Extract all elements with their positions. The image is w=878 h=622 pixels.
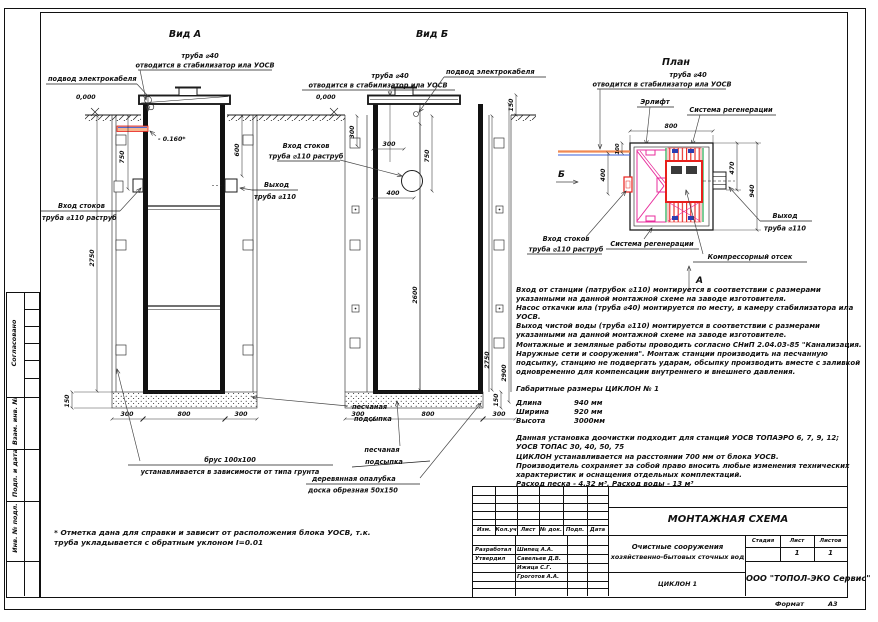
note-paragraph: Насос откачки ила (труба ⌀40) монтируетс… (516, 304, 862, 322)
dim-800-plan: 800 (665, 123, 679, 130)
inlet-label-a: Вход стоков (58, 202, 105, 210)
brus-label: устанавливается в зависимости от типа гр… (141, 468, 320, 476)
plan-title: План (662, 57, 690, 68)
tb-col-podp: Подп. (563, 527, 587, 533)
tb-col-data: Дата (587, 527, 608, 533)
tb-col-izm: Изм. (473, 527, 495, 533)
tb-col-ndok: № док. (539, 527, 563, 533)
tb-sheet-label: Лист (780, 538, 814, 544)
dim-150-top: 150 (508, 98, 515, 112)
compressor-label: Компрессорный отсек (708, 253, 793, 261)
size-label: Ширина (516, 408, 574, 417)
dim-300: 300 (352, 411, 366, 418)
tb-role: Разработал (475, 547, 511, 553)
notes-block: Вход от станции (патрубок ⌀110) монтируе… (516, 286, 862, 489)
inlet-label-a: труба ⌀110 раструб (42, 214, 117, 222)
pipe40-label-b: отводится в стабилизатор ила УОСВ (309, 82, 448, 90)
margin-label-inv-repl: Взам. инв. № (11, 395, 19, 447)
dim-400-b: 400 (387, 190, 401, 197)
size-label: Длина (516, 399, 574, 408)
footnote: * Отметка дана для справки и зависит от … (54, 528, 392, 548)
inlet-label-plan: труба ⌀110 раструб (529, 246, 604, 254)
dim-750: 750 (119, 150, 126, 164)
pipe40-label: труба ⌀40 (181, 52, 219, 60)
airlift-label: Эрлифт (640, 98, 671, 106)
dim-750-b: 750 (424, 149, 431, 163)
tb-sheet-no: 1 (780, 549, 814, 557)
dim-800: 800 (178, 411, 192, 418)
sand-label-b: песчаная (364, 446, 400, 454)
post-brackets (116, 135, 253, 355)
regen-label-bottom: Система регенерации (610, 240, 694, 248)
tb-stage-label: Стадия (746, 538, 780, 544)
formwork-label: деревянная опалубка (311, 475, 396, 483)
dim-600: 600 (234, 143, 241, 157)
tb-name: Ижица С.Г. (517, 565, 552, 571)
view-b-title: Вид Б (416, 29, 448, 40)
format-label: Формат (775, 600, 804, 608)
dim-300: 300 (121, 411, 135, 418)
margin-label-inv-orig: Инв. № подл. (11, 498, 19, 558)
tb-sheets-label: Листов (814, 538, 847, 544)
inlet-label-plan: Вход стоков (543, 235, 590, 243)
tb-company: ООО "ТОПОЛ-ЭКО Сервис" (746, 573, 847, 583)
view-a-title: Вид А (169, 29, 201, 40)
formwork-label: доска обрезная 50х150 (307, 487, 398, 495)
inlet-label-b: труба ⌀110 раструб (269, 153, 344, 161)
tb-name: Гроготов А.А. (517, 574, 559, 580)
pipe40-label-b: труба ⌀40 (371, 72, 409, 80)
outlet-label-plan: Выход (772, 212, 797, 220)
tb-role: Утвердил (475, 556, 505, 562)
ground-line (85, 115, 536, 121)
dim-2900: 2900 (501, 364, 508, 382)
tb-object-line2: хозяйственно-бытовых сточных вод (609, 553, 746, 561)
view-a: Вид А (40, 29, 392, 476)
tb-doc-code: ЦИКЛОН 1 (609, 580, 746, 588)
dim-470: 470 (729, 161, 736, 175)
outlet-label: Выход (264, 181, 289, 189)
dim-2750-a: 2750 (89, 249, 96, 267)
tb-col-koluch: Кол.уч (495, 527, 517, 533)
size-value: 3000мм (574, 417, 605, 425)
inlet-label-b: Вход стоков (283, 142, 330, 150)
outlet-label: труба ⌀110 (254, 193, 296, 201)
margin-label-sign-date: Подп. и дата (11, 447, 19, 499)
tb-name: Савельев Д.В. (517, 556, 561, 562)
size-label: Высота (516, 417, 574, 426)
plan-outlet-stub (713, 172, 726, 189)
tb-col-list: Лист (517, 527, 539, 533)
sand-layer-a (112, 392, 257, 408)
dim-150-a: 150 (64, 394, 71, 408)
dim-2750-b: 2750 (484, 351, 491, 369)
tb-sheets-total: 1 (814, 549, 847, 557)
dim-150-sand: 150 (493, 393, 500, 407)
pipe40-label: отводится в стабилизатор ила УОСВ (136, 62, 275, 70)
dim-800: 800 (422, 411, 436, 418)
plan-inlet-stub (624, 177, 632, 192)
size-value: 920 мм (574, 408, 603, 416)
note-paragraph: Данная установка доочистки подходит для … (516, 434, 862, 452)
dim-100: 100 (615, 143, 621, 155)
outlet-stub-a (225, 179, 237, 192)
inlet-stub-a (133, 179, 143, 192)
dim-300-depth: 300 (349, 125, 356, 139)
dim-300: 300 (493, 411, 507, 418)
cable-label-a: подвод электрокабеля (48, 75, 137, 83)
dim-400-plan: 400 (600, 168, 607, 182)
minus-mark: - 0.160* (158, 136, 186, 143)
plan-view: План труба ⌀40 отводится в стабилизатор … (527, 57, 812, 292)
cable-label-b: подвод электрокабеля (446, 68, 535, 76)
size-row: Ширина920 мм (516, 408, 862, 417)
outlet-label-plan: труба ⌀110 (764, 225, 806, 233)
format-value: А3 (828, 600, 838, 608)
tb-scheme-title: МОНТАЖНАЯ СХЕМА (609, 514, 847, 525)
dim-2600: 2600 (412, 286, 419, 304)
dims-heading: Габаритные размеры ЦИКЛОН № 1 (516, 385, 862, 394)
margin-label-approved: Согласовано (10, 291, 18, 395)
regen-label-top: Система регенерации (689, 106, 773, 114)
pipe40-label-plan: отводится в стабилизатор ила УОСВ (593, 81, 732, 89)
note-paragraph: Вход от станции (патрубок ⌀110) монтируе… (516, 286, 862, 304)
dim-300: 300 (235, 411, 249, 418)
pipe40-label-plan: труба ⌀40 (669, 71, 707, 79)
title-block: Изм. Кол.уч Лист № док. Подп. Дата Разра… (472, 486, 848, 598)
tb-name: Шипец А.А. (517, 547, 553, 553)
drawing-sheet: Вид А (0, 0, 878, 622)
dim-300-offset: 300 (383, 141, 397, 148)
dir-b-label: Б (558, 170, 565, 180)
view-b: Вид Б (269, 29, 546, 495)
note-paragraph: Монтажные и земляные работы проводить со… (516, 341, 862, 377)
inlet-pipe-circle (402, 171, 423, 192)
size-row: Длина940 мм (516, 399, 862, 408)
dim-940: 940 (749, 184, 756, 198)
zero-mark-a: 0,000 (76, 94, 96, 101)
note-paragraph: Производитель сохраняет за собой право в… (516, 462, 862, 480)
note-paragraph: ЦИКЛОН устанавливается на расстоянии 700… (516, 453, 862, 462)
size-value: 940 мм (574, 399, 603, 407)
brus-label: брус 100х100 (204, 456, 256, 464)
size-row: Высота3000мм (516, 417, 862, 426)
electric-pipe (117, 126, 148, 132)
note-paragraph: Выход чистой воды (труба ⌀110) монтирует… (516, 322, 862, 340)
dir-a-label: А (695, 276, 703, 286)
zero-mark-b: 0,000 (316, 94, 336, 101)
sand-layer-b (345, 392, 483, 408)
tb-object-line1: Очистные сооружения (609, 543, 746, 551)
cable-entry-circle (414, 112, 419, 117)
